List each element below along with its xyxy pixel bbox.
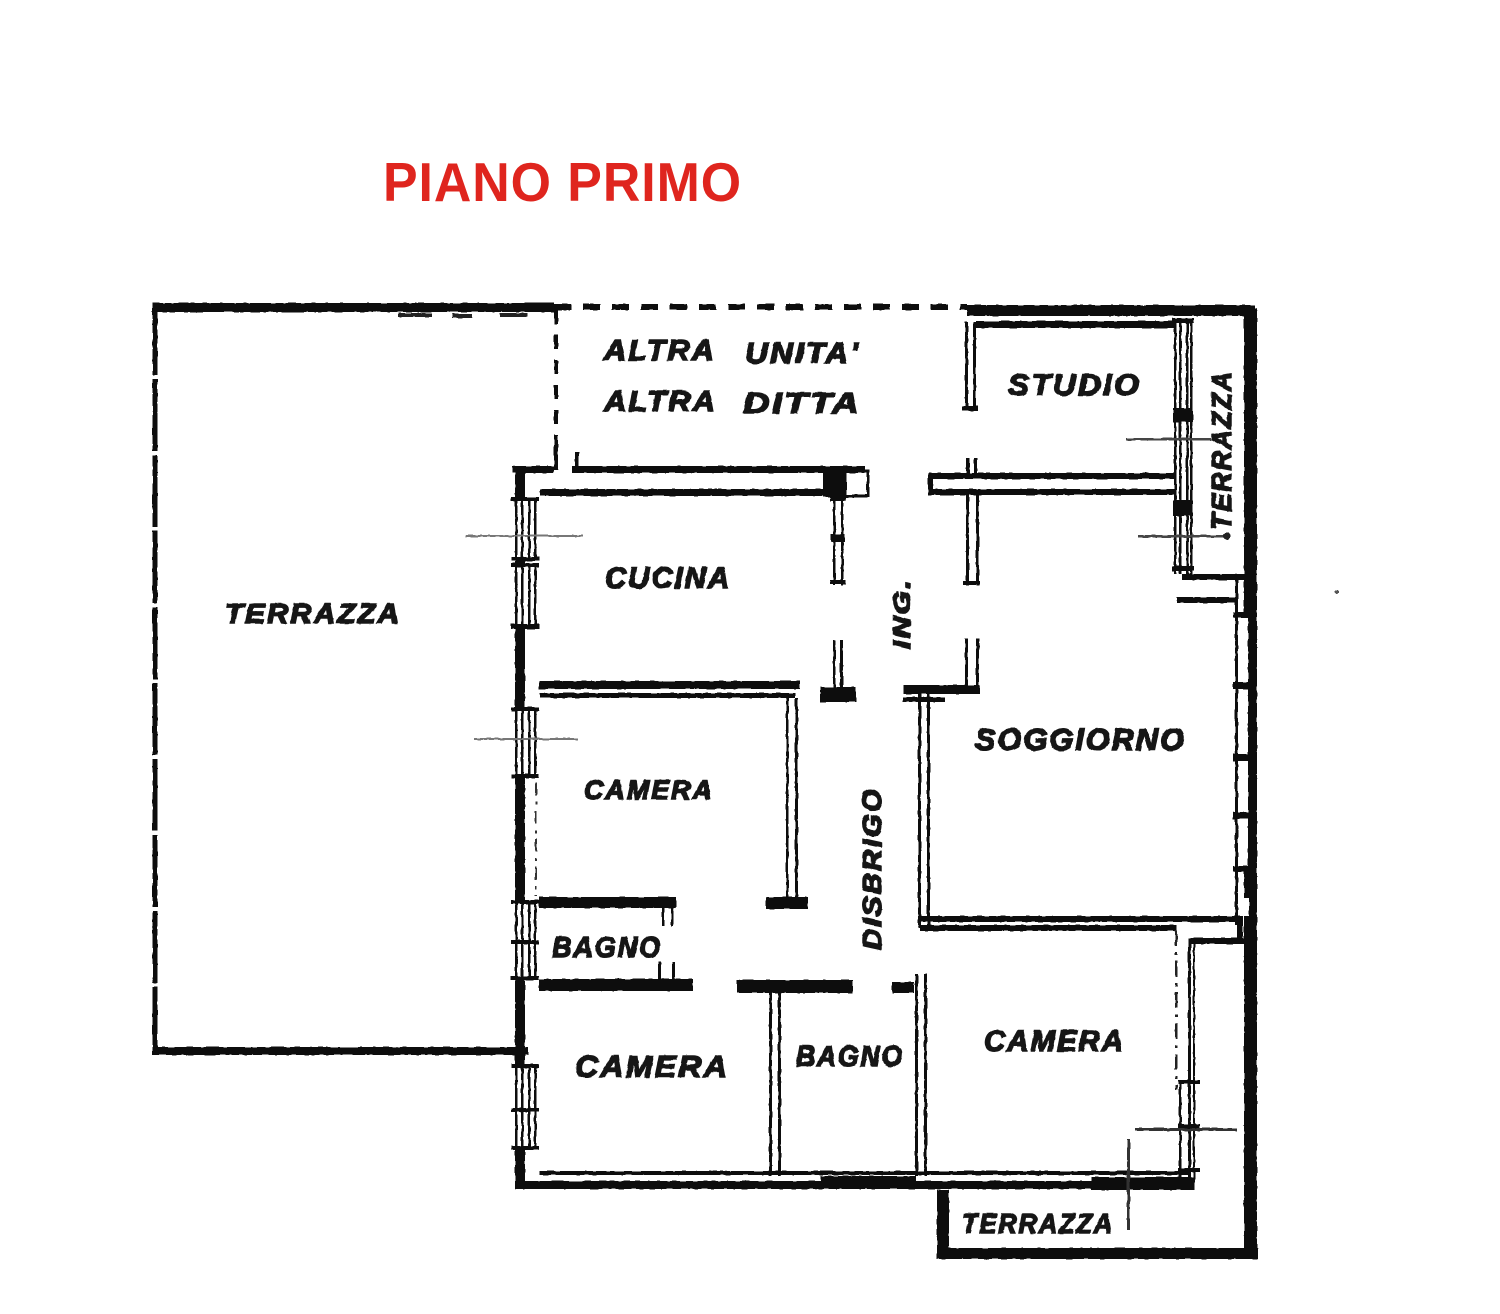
- svg-text:CUCINA: CUCINA: [605, 562, 731, 595]
- svg-text:PIANO PRIMO: PIANO PRIMO: [383, 151, 742, 213]
- svg-text:UNITA': UNITA': [745, 338, 860, 370]
- svg-text:ALTRA: ALTRA: [603, 386, 717, 418]
- svg-text:DISBRIGO: DISBRIGO: [857, 787, 887, 950]
- svg-text:CAMERA: CAMERA: [584, 775, 714, 805]
- svg-text:TERRAZZA: TERRAZZA: [1206, 370, 1237, 530]
- svg-text:TERRAZZA: TERRAZZA: [225, 598, 401, 629]
- svg-text:DITTA: DITTA: [743, 388, 861, 420]
- svg-text:SOGGIORNO: SOGGIORNO: [975, 722, 1186, 757]
- svg-text:STUDIO: STUDIO: [1008, 369, 1141, 402]
- svg-text:ALTRA: ALTRA: [603, 335, 716, 367]
- svg-text:TERRAZZA: TERRAZZA: [962, 1208, 1114, 1239]
- svg-text:CAMERA: CAMERA: [575, 1049, 729, 1084]
- svg-text:BAGNO: BAGNO: [796, 1041, 904, 1073]
- svg-text:CAMERA: CAMERA: [984, 1025, 1125, 1058]
- svg-text:BAGNO: BAGNO: [552, 932, 662, 964]
- svg-text:ING.: ING.: [889, 578, 916, 649]
